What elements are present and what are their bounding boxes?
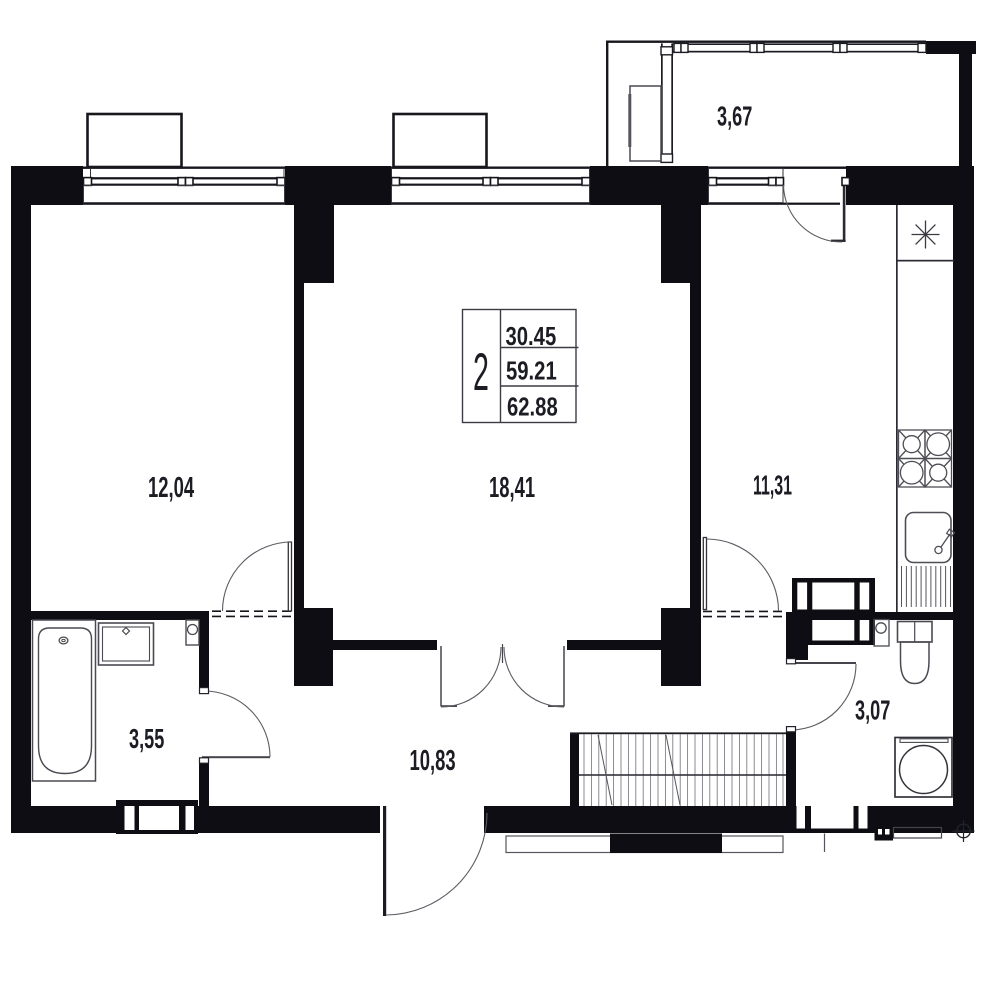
svg-text:3,55: 3,55 [129,723,164,754]
svg-text:12,04: 12,04 [148,472,194,504]
svg-text:30.45: 30.45 [506,322,557,351]
svg-text:10,83: 10,83 [410,745,456,777]
svg-text:3,07: 3,07 [855,695,890,726]
svg-text:11,31: 11,31 [753,470,792,501]
svg-text:2: 2 [473,343,489,403]
svg-text:59.21: 59.21 [506,356,557,385]
svg-text:62.88: 62.88 [507,392,558,421]
svg-text:18,41: 18,41 [489,472,535,504]
svg-text:3,67: 3,67 [717,101,752,132]
